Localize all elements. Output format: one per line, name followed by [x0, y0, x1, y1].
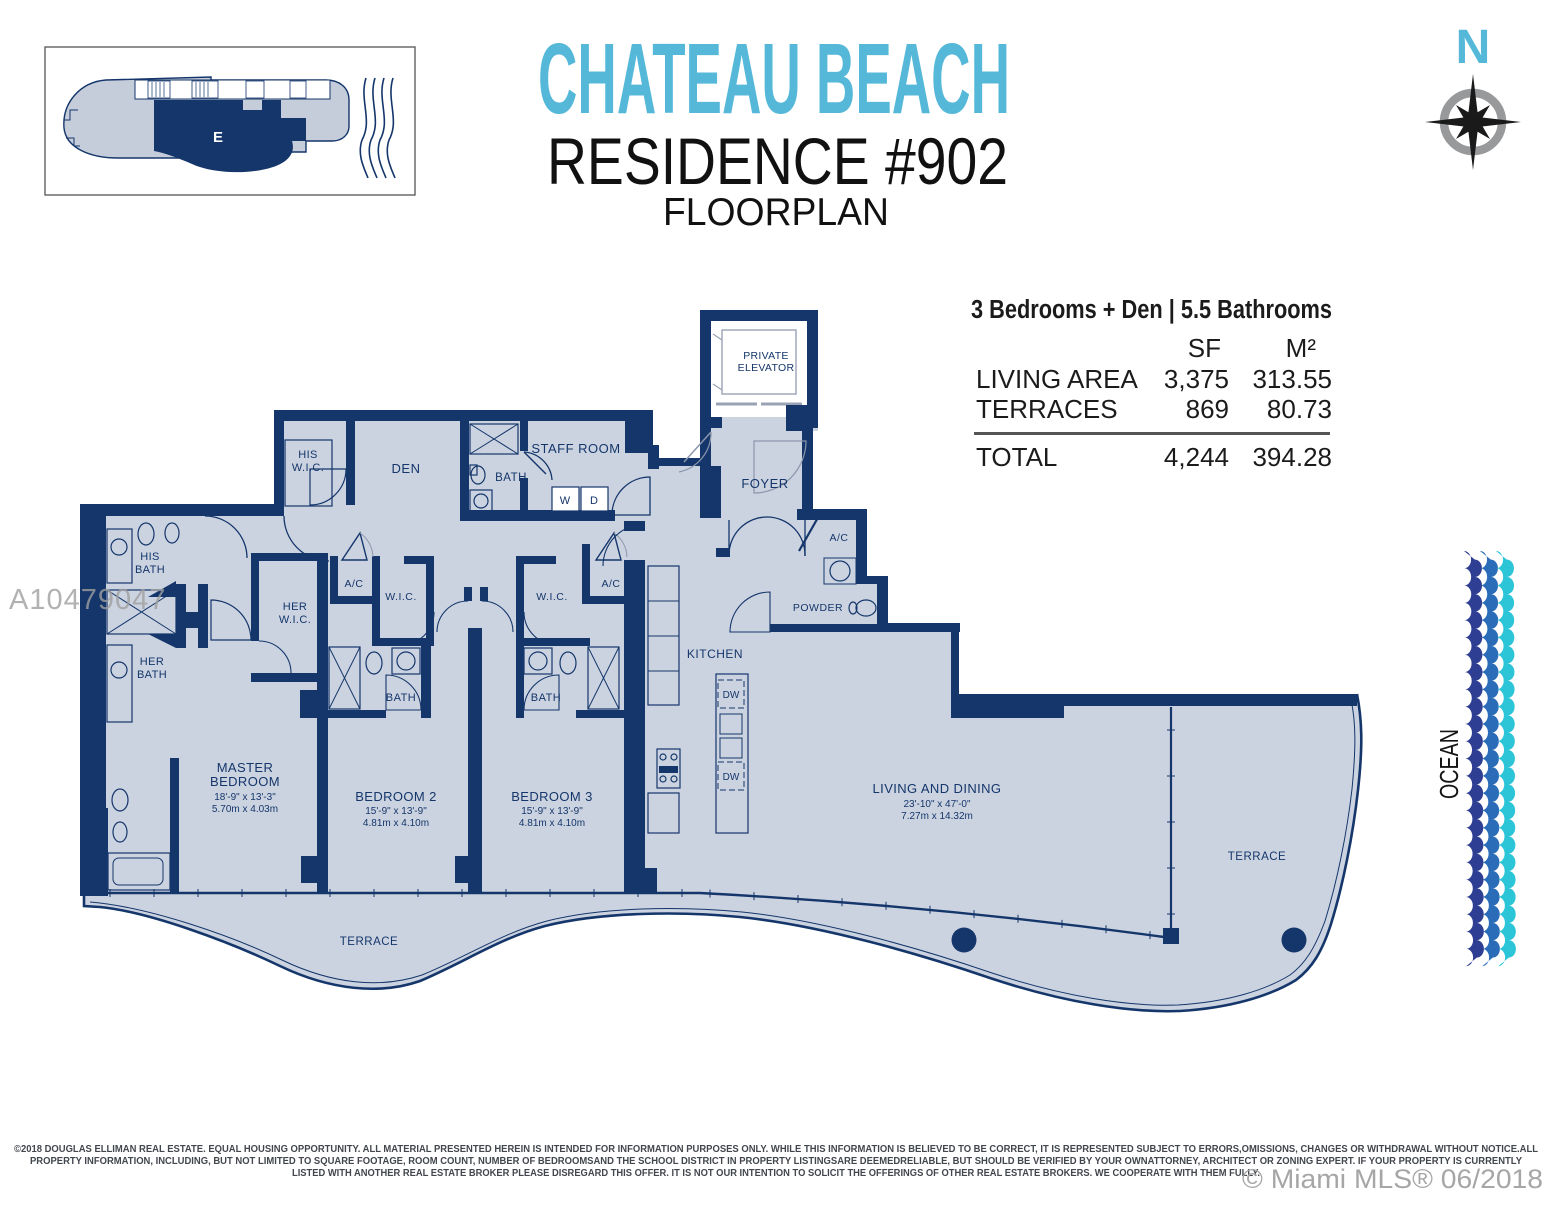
svg-text:N: N	[1456, 21, 1491, 74]
svg-text:MASTER: MASTER	[217, 760, 274, 775]
svg-text:W.I.C.: W.I.C.	[385, 591, 417, 603]
svg-text:FOYER: FOYER	[741, 476, 788, 491]
svg-text:15'-9" x 13'-9": 15'-9" x 13'-9"	[521, 806, 583, 817]
svg-text:POWDER: POWDER	[793, 602, 843, 614]
svg-text:©2018 DOUGLAS ELLIMAN REAL EST: ©2018 DOUGLAS ELLIMAN REAL ESTATE. EQUAL…	[14, 1144, 1538, 1155]
svg-text:W: W	[560, 495, 571, 507]
svg-text:BATH: BATH	[137, 669, 167, 681]
svg-text:BEDROOM: BEDROOM	[210, 774, 280, 789]
svg-text:LIVING AREA: LIVING AREA	[976, 364, 1138, 394]
svg-text:869: 869	[1186, 394, 1229, 424]
svg-text:BEDROOM 2: BEDROOM 2	[355, 789, 437, 804]
svg-text:DW: DW	[723, 690, 740, 701]
svg-text:4.81m x 4.10m: 4.81m x 4.10m	[363, 818, 429, 829]
svg-text:4,244: 4,244	[1164, 442, 1229, 472]
svg-text:18'-9" x 13'-3": 18'-9" x 13'-3"	[214, 792, 276, 803]
svg-text:W.I.C.: W.I.C.	[292, 462, 324, 474]
svg-text:23'-10" x 47'-0": 23'-10" x 47'-0"	[903, 799, 971, 810]
svg-text:15'-9" x 13'-9": 15'-9" x 13'-9"	[365, 806, 427, 817]
svg-text:E: E	[213, 129, 223, 146]
svg-text:W.I.C.: W.I.C.	[279, 614, 311, 626]
svg-text:BEDROOM 3: BEDROOM 3	[511, 789, 593, 804]
svg-text:TERRACE: TERRACE	[1228, 851, 1286, 863]
svg-text:3 Bedrooms + Den | 5.5 Bathroo: 3 Bedrooms + Den | 5.5 Bathrooms	[971, 296, 1332, 324]
svg-text:HIS: HIS	[140, 551, 160, 563]
svg-text:RESIDENCE #902: RESIDENCE #902	[547, 124, 1008, 198]
svg-text:394.28: 394.28	[1252, 442, 1332, 472]
svg-text:© Miami MLS® 06/2018: © Miami MLS® 06/2018	[1242, 1164, 1543, 1194]
svg-text:BATH: BATH	[135, 564, 165, 576]
svg-text:KITCHEN: KITCHEN	[687, 647, 743, 661]
svg-text:PRIVATE: PRIVATE	[743, 350, 788, 362]
svg-text:A/C: A/C	[829, 532, 848, 544]
svg-text:4.81m x 4.10m: 4.81m x 4.10m	[519, 818, 585, 829]
svg-text:TOTAL: TOTAL	[976, 442, 1057, 472]
svg-text:ELEVATOR: ELEVATOR	[738, 362, 795, 374]
svg-text:LISTED WITH ANOTHER REAL ESTAT: LISTED WITH ANOTHER REAL ESTATE BROKER P…	[292, 1168, 1260, 1179]
svg-text:7.27m x 14.32m: 7.27m x 14.32m	[901, 811, 973, 822]
svg-text:FLOORPLAN: FLOORPLAN	[663, 191, 889, 234]
svg-text:HER: HER	[140, 656, 164, 668]
svg-text:SF: SF	[1188, 333, 1221, 363]
svg-text:CHATEAU BEACH: CHATEAU BEACH	[538, 23, 1010, 135]
svg-text:3,375: 3,375	[1164, 364, 1229, 394]
svg-text:W.I.C.: W.I.C.	[536, 591, 568, 603]
svg-text:OCEAN: OCEAN	[1434, 729, 1464, 799]
svg-text:DEN: DEN	[392, 461, 421, 476]
svg-text:A10479047: A10479047	[9, 584, 166, 616]
svg-text:DW: DW	[723, 772, 740, 783]
svg-text:A/C: A/C	[601, 578, 620, 590]
svg-text:5.70m x 4.03m: 5.70m x 4.03m	[212, 804, 278, 815]
svg-text:TERRACES: TERRACES	[976, 394, 1118, 424]
svg-text:HIS: HIS	[298, 449, 318, 461]
svg-text:BATH: BATH	[495, 472, 527, 484]
svg-text:TERRACE: TERRACE	[340, 936, 398, 948]
svg-text:D: D	[590, 495, 598, 507]
svg-text:BATH: BATH	[531, 692, 562, 704]
svg-text:LIVING AND DINING: LIVING AND DINING	[873, 781, 1002, 796]
svg-text:M²: M²	[1286, 333, 1317, 363]
svg-text:313.55: 313.55	[1252, 364, 1332, 394]
svg-text:80.73: 80.73	[1267, 394, 1332, 424]
svg-text:BATH: BATH	[386, 692, 417, 704]
svg-text:STAFF ROOM: STAFF ROOM	[531, 441, 620, 456]
svg-text:A/C: A/C	[344, 578, 363, 590]
svg-text:HER: HER	[283, 601, 307, 613]
